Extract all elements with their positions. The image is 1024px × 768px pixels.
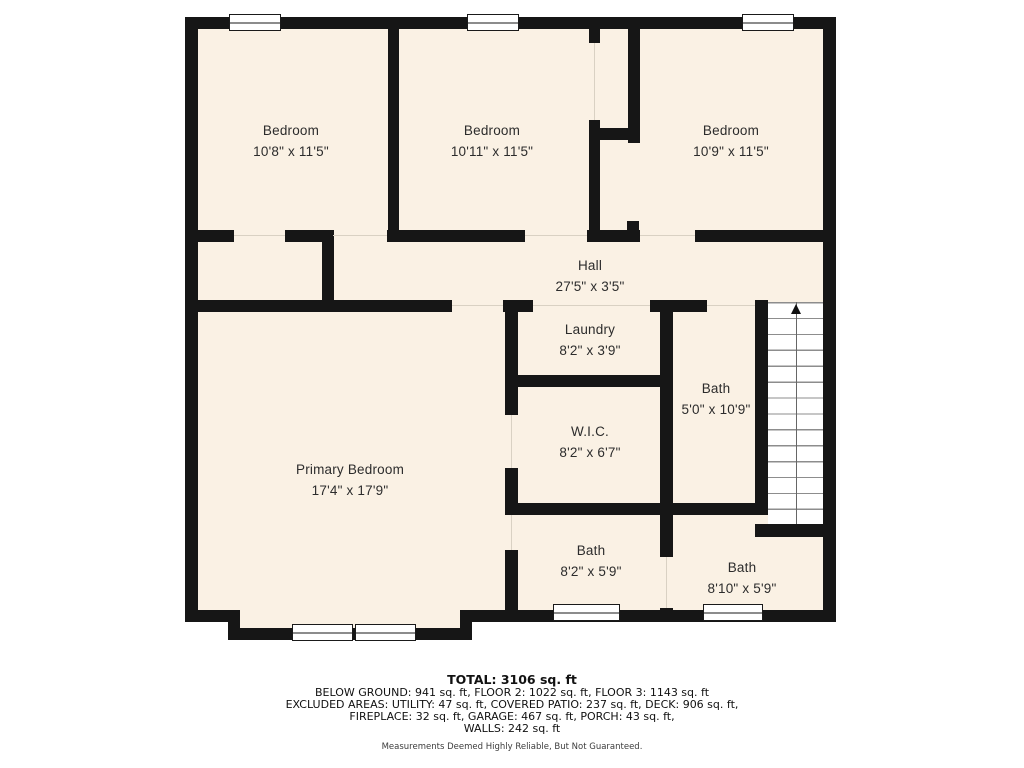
summary-walls: WALLS: 242 sq. ft bbox=[0, 722, 1024, 735]
summary-disclaimer: Measurements Deemed Highly Reliable, But… bbox=[0, 742, 1024, 752]
floorplan-page: Bedroom 10'8" x 11'5" Bedroom 10'11" x 1… bbox=[0, 0, 1024, 768]
area-summary: TOTAL: 3106 sq. ft BELOW GROUND: 941 sq.… bbox=[0, 0, 1024, 768]
summary-total: TOTAL: 3106 sq. ft bbox=[0, 672, 1024, 687]
